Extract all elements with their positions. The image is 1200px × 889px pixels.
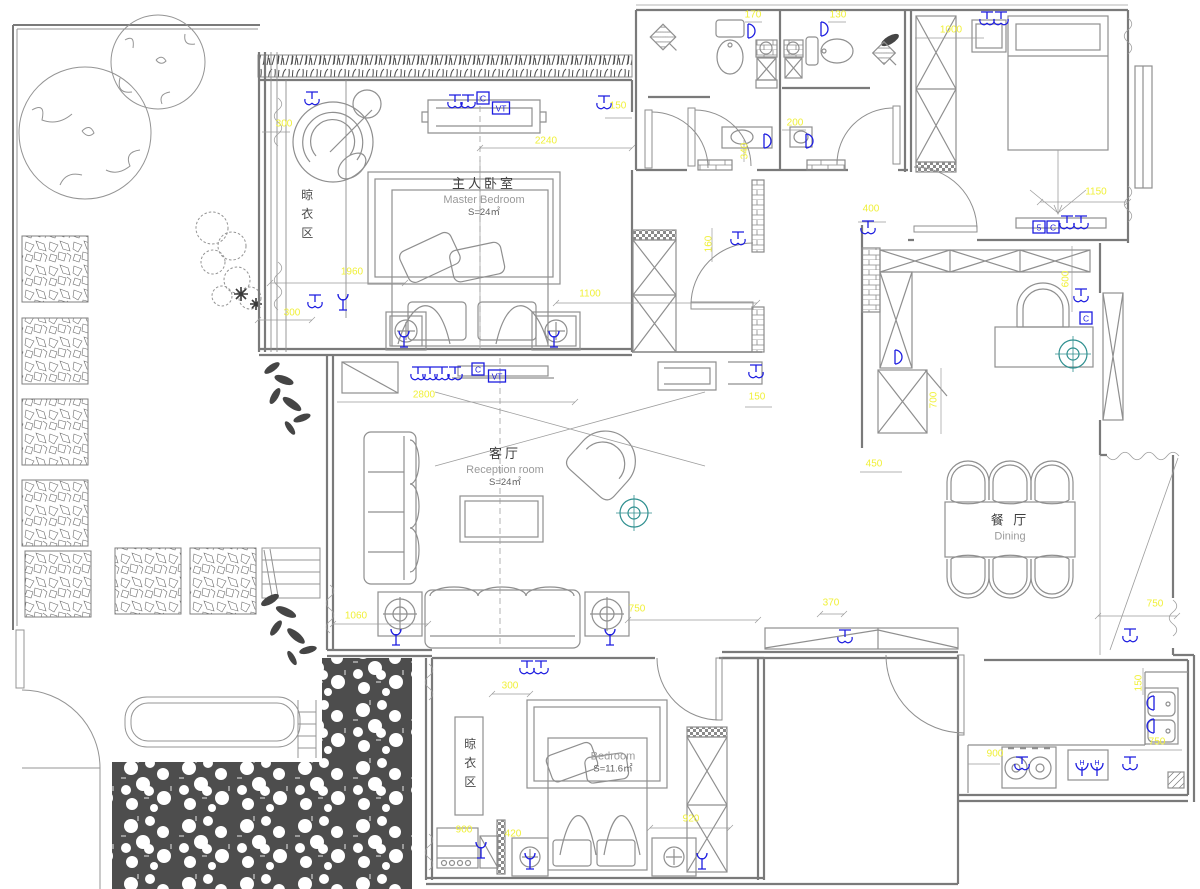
bed <box>1008 16 1108 150</box>
tv <box>452 366 554 378</box>
socket-icon <box>534 661 548 674</box>
tv-console <box>342 362 398 393</box>
closet <box>455 717 483 815</box>
kitchen-counter <box>968 672 1188 793</box>
lamp-symbol-icon <box>605 629 615 645</box>
cabinet <box>878 370 947 433</box>
shoe-cabinet <box>765 628 958 649</box>
svg-text:VT: VT <box>492 372 503 382</box>
lamp-symbol-icon <box>549 331 559 347</box>
stone-tile <box>22 236 88 302</box>
garden-bench <box>125 697 300 747</box>
socket-icon <box>749 365 763 378</box>
stone-tile <box>22 399 88 465</box>
shower-head <box>873 42 902 71</box>
coffee-table <box>460 496 543 542</box>
dresser <box>437 828 498 868</box>
desk-chair <box>1017 283 1069 327</box>
svg-text:VT: VT <box>496 104 507 114</box>
dining-chair <box>1031 555 1073 598</box>
garden-steps <box>262 548 320 598</box>
outlet-box-icon: C <box>477 92 489 104</box>
outlet-box-icon: 5 <box>1033 221 1045 233</box>
fixture-arc-icon <box>895 350 902 364</box>
kitchen-sink <box>1145 688 1178 744</box>
socket-icon <box>520 661 534 674</box>
svg-text:C: C <box>475 365 481 375</box>
garden-ladder <box>298 700 316 758</box>
wardrobe <box>687 727 727 872</box>
dining-chair <box>947 461 989 504</box>
socket-icon <box>597 96 611 109</box>
socket-icon <box>1123 629 1137 642</box>
window <box>1103 293 1123 420</box>
master-bed <box>368 172 560 346</box>
dining-chair <box>989 461 1031 504</box>
tree-icon <box>19 67 151 199</box>
wall-niche <box>658 362 762 390</box>
pebble-paving <box>112 762 325 889</box>
wardrobe <box>916 16 956 172</box>
svg-text:5: 5 <box>1037 223 1042 233</box>
nightstand <box>512 838 548 876</box>
lamp-symbol-icon <box>338 294 348 310</box>
fixture-arc-icon <box>748 24 755 38</box>
outlet-box-icon: C <box>1047 221 1059 233</box>
dining-chair <box>947 555 989 598</box>
cabinet <box>880 272 912 368</box>
side-table <box>585 592 629 636</box>
garden-layer <box>13 15 901 889</box>
dining-chair <box>1031 461 1073 504</box>
toilet <box>806 37 853 65</box>
compass-icon <box>616 495 652 531</box>
shrub-icon <box>196 212 261 309</box>
socket-icon <box>308 295 322 308</box>
shower-head <box>650 24 683 57</box>
window <box>1135 66 1152 188</box>
fixture-arc-icon <box>764 134 771 148</box>
wardrobe <box>633 230 676 352</box>
socket-icon <box>461 95 475 108</box>
dresser-cabinet <box>422 100 546 133</box>
svg-text:C: C <box>1050 223 1056 233</box>
nightstand <box>532 312 580 350</box>
fixture-arc-icon <box>821 22 828 36</box>
side-table <box>378 592 422 636</box>
socket-icon <box>731 232 745 245</box>
outlet-box-icon: C <box>472 363 484 375</box>
floorplan-drawing: CVTCVT5CCHH <box>0 0 1200 889</box>
socket-icon: H <box>1091 760 1103 776</box>
stone-tile <box>22 480 88 546</box>
svg-text:H: H <box>1094 760 1099 767</box>
socket-icon: H <box>1076 760 1088 776</box>
pebble-paving <box>322 658 412 889</box>
svg-text:C: C <box>1083 314 1089 324</box>
floorplan-canvas: CVTCVT5CCHH 主人卧室 Master Bedroom S=24㎡ 客厅… <box>0 0 1200 889</box>
nightstand <box>652 838 696 876</box>
toilet <box>716 20 744 74</box>
outlet-box-icon: C <box>1080 312 1092 324</box>
stone-tile <box>22 318 88 384</box>
sofa <box>425 587 580 648</box>
svg-text:H: H <box>1079 760 1084 767</box>
desk <box>995 327 1093 367</box>
socket-icon <box>1123 757 1137 770</box>
loveseat <box>364 432 419 584</box>
socket-icon <box>1074 289 1088 302</box>
cabinet-row <box>880 250 1090 272</box>
dining-table <box>945 502 1075 557</box>
socket-icon <box>448 95 462 108</box>
socket-icon <box>305 92 319 105</box>
armchair <box>563 419 648 504</box>
dining-chair <box>989 555 1031 598</box>
lamp-symbol-icon <box>697 853 707 869</box>
hedge-strip <box>258 55 632 77</box>
stone-tile <box>25 551 91 617</box>
stone-tile <box>190 548 256 614</box>
floor-drain <box>1168 772 1184 788</box>
socket-icon <box>980 12 994 25</box>
lamp-symbol-icon <box>391 629 401 645</box>
svg-text:C: C <box>480 94 486 104</box>
garden-door <box>16 630 100 889</box>
stone-tile <box>115 548 181 614</box>
